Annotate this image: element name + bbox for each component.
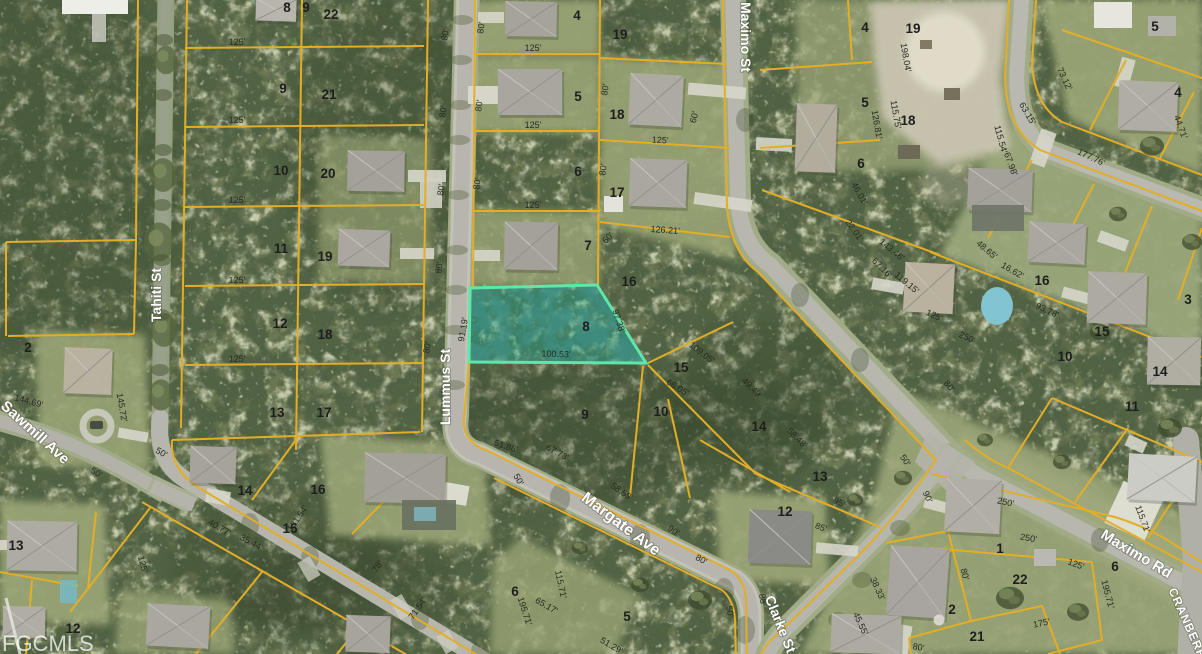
svg-text:FGCMLS: FGCMLS [2,631,94,654]
svg-text:5: 5 [1151,19,1159,34]
svg-text:126.21': 126.21' [650,224,680,236]
svg-text:11: 11 [1125,399,1140,414]
svg-text:15: 15 [673,360,689,375]
svg-text:16: 16 [1034,273,1050,288]
svg-text:9: 9 [581,407,589,422]
svg-text:17: 17 [609,185,624,200]
svg-text:Lummus St: Lummus St [437,349,453,426]
svg-text:6: 6 [511,584,519,599]
svg-text:2: 2 [948,602,956,617]
svg-text:19: 19 [317,249,332,264]
svg-text:125': 125' [229,354,246,364]
svg-text:6: 6 [857,156,865,171]
svg-text:1: 1 [996,541,1004,556]
svg-text:10: 10 [273,163,288,178]
svg-text:21: 21 [321,87,337,102]
svg-text:4: 4 [573,8,581,23]
svg-text:5: 5 [861,95,869,110]
svg-text:3: 3 [1184,292,1192,307]
svg-text:80': 80' [433,261,445,274]
svg-text:80': 80' [435,183,447,196]
svg-text:15: 15 [1094,324,1110,339]
svg-text:Tahiti St: Tahiti St [148,268,164,323]
svg-text:14: 14 [1152,364,1168,379]
svg-text:6: 6 [574,164,582,179]
svg-text:5: 5 [574,89,582,104]
svg-text:125': 125' [525,43,542,53]
svg-text:7: 7 [584,238,592,253]
svg-text:125': 125' [652,135,670,146]
svg-text:8: 8 [283,0,291,15]
svg-text:125': 125' [228,275,245,285]
svg-text:80': 80' [473,99,485,112]
svg-text:2: 2 [24,340,32,355]
svg-text:10: 10 [1057,349,1072,364]
svg-text:14: 14 [237,483,253,498]
svg-text:16: 16 [621,274,637,289]
svg-text:80': 80' [421,341,433,355]
svg-text:9: 9 [279,81,287,96]
svg-text:80': 80' [439,28,451,41]
svg-text:18: 18 [317,327,333,342]
svg-text:9: 9 [302,0,310,15]
svg-text:13: 13 [269,405,285,420]
svg-text:17: 17 [316,405,331,420]
svg-text:80': 80' [471,177,483,190]
svg-text:125': 125' [525,200,542,210]
svg-text:125': 125' [525,120,542,130]
svg-text:6: 6 [1111,559,1119,574]
svg-text:125': 125' [229,37,246,47]
svg-text:5: 5 [623,609,631,624]
svg-text:19: 19 [612,27,627,42]
svg-text:10: 10 [653,404,668,419]
svg-text:13: 13 [812,469,828,484]
svg-text:100.53': 100.53' [541,348,571,359]
svg-text:4: 4 [1174,85,1182,100]
svg-text:11: 11 [274,241,289,256]
svg-text:22: 22 [1012,572,1027,587]
svg-text:13: 13 [8,538,24,553]
svg-text:80': 80' [597,163,609,176]
svg-text:50': 50' [724,605,736,619]
svg-text:8: 8 [582,319,590,334]
svg-text:16: 16 [310,482,326,497]
svg-text:80': 80' [475,21,487,34]
svg-text:80': 80' [437,105,449,118]
svg-text:80': 80' [599,83,611,96]
svg-text:18: 18 [609,107,625,122]
svg-text:4: 4 [861,20,869,35]
svg-text:22: 22 [323,7,338,22]
svg-text:80': 80' [912,641,926,653]
svg-text:14: 14 [751,419,767,434]
svg-text:12: 12 [272,316,287,331]
svg-text:20: 20 [320,166,335,181]
svg-text:125': 125' [229,195,246,205]
svg-text:19: 19 [905,21,920,36]
svg-text:Maximo St: Maximo St [738,2,754,72]
svg-text:125': 125' [229,115,246,125]
svg-text:12: 12 [777,504,792,519]
svg-text:21: 21 [969,629,985,644]
